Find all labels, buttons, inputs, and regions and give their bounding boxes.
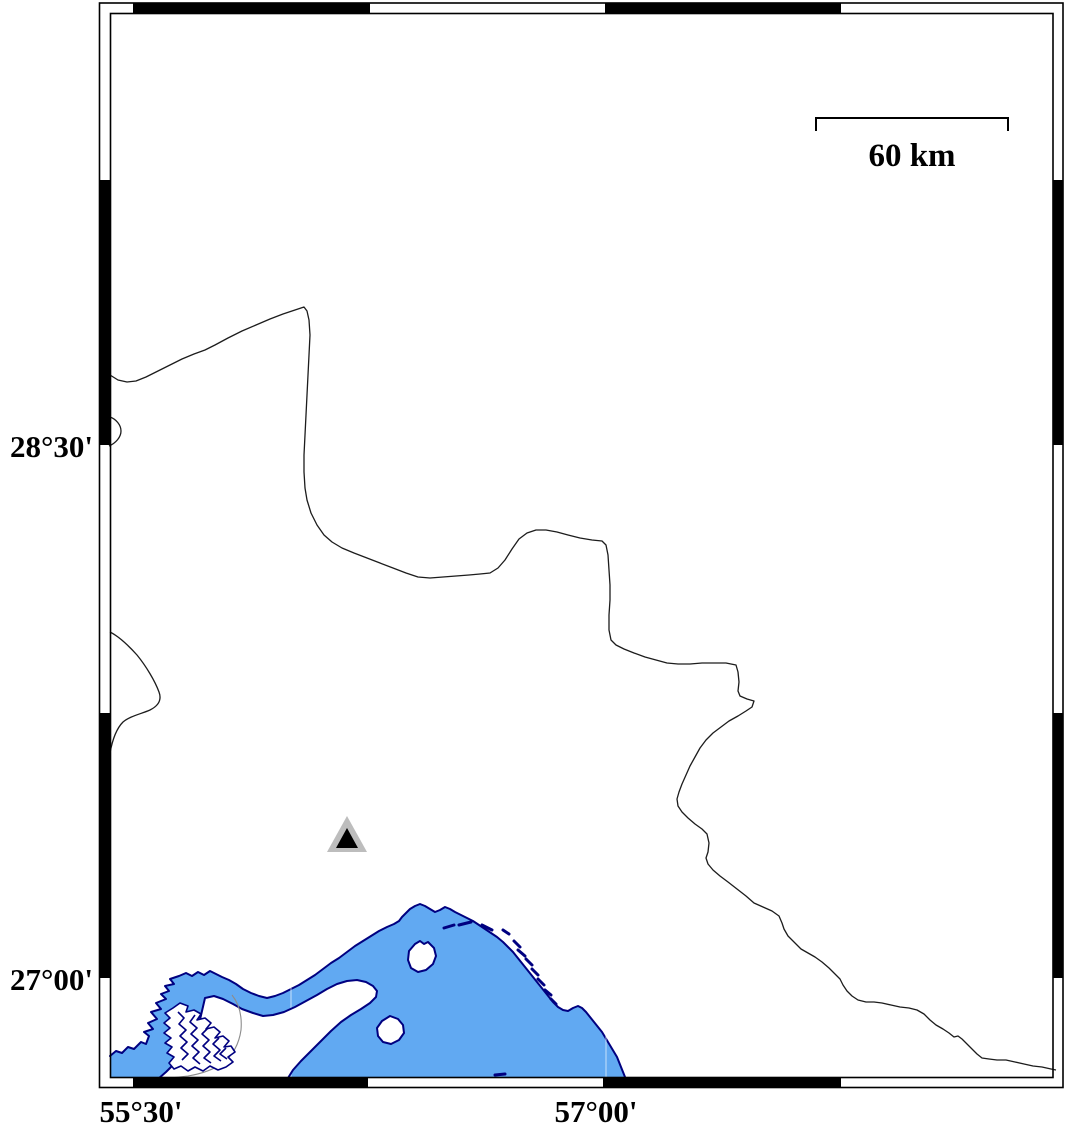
admin-boundary-line (110, 307, 1056, 1070)
lon-label-right: 57°00' (554, 1094, 637, 1127)
station-triangle-marker (327, 816, 367, 852)
frame-seg-right-1 (1053, 180, 1063, 445)
frame-seg-right-2 (1053, 713, 1063, 978)
lat-label-lower: 27°00' (10, 962, 93, 997)
frame-seg-top-1 (133, 3, 370, 14)
frame-seg-top-2 (605, 3, 841, 14)
coastal-bump-large (110, 632, 160, 753)
boundary-layer (109, 307, 1056, 1070)
map-figure: 60 km 28°30' 27°00' 55°30' 57°00' (0, 0, 1066, 1127)
lon-label-left: 55°30' (99, 1094, 182, 1127)
scale-bar: 60 km (816, 118, 1008, 174)
scale-bar-bracket (816, 118, 1008, 131)
frame-seg-left-1 (100, 180, 111, 445)
scale-bar-label: 60 km (868, 138, 955, 174)
frame-seg-bottom-1 (133, 1078, 368, 1088)
lat-label-upper: 28°30' (10, 429, 93, 464)
frame-seg-bottom-2 (603, 1078, 841, 1088)
frame-seg-left-2 (100, 713, 111, 978)
